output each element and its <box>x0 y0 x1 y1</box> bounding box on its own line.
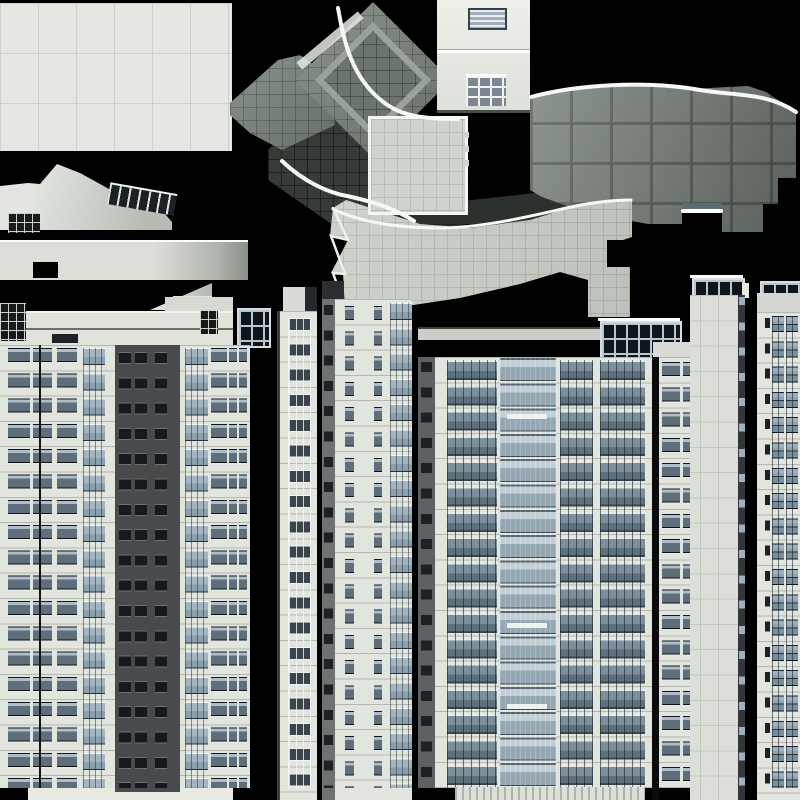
rightwin-wincol-1 <box>772 316 784 788</box>
leftblock-wincol-3 <box>57 348 77 788</box>
bigtower-bay-3 <box>600 360 645 788</box>
midcol1-parapet-dark <box>305 287 317 311</box>
dark-tower-wincol-1 <box>119 352 131 788</box>
atrium-louver-1 <box>507 414 547 419</box>
midcol2-balcony-col <box>390 303 412 788</box>
midcol1-wincol <box>288 318 311 788</box>
leftblock-grid-right <box>200 310 218 334</box>
roof-dark-window-piece <box>8 213 40 233</box>
leftblock-balcony-col-2 <box>185 348 208 788</box>
rightplain-seam-2 <box>718 295 719 800</box>
midcol1-edge <box>277 311 280 800</box>
bigtower-roof-strip <box>418 327 601 340</box>
leftblock-pipe <box>39 345 41 788</box>
dark-tower-wincol-3 <box>155 352 167 788</box>
bigtower-bay-2 <box>560 360 593 788</box>
leftblock-dark-strip <box>52 334 78 343</box>
atrium-louver-3 <box>507 704 547 709</box>
right-roof-blue-sliver <box>683 203 721 209</box>
rightplain-seam-1 <box>700 295 701 800</box>
leftblock-wincol-2 <box>33 348 52 788</box>
glassbox-small <box>237 308 271 348</box>
rightwin-wincol-2 <box>786 316 798 788</box>
leftblock-parapet-line <box>0 328 233 330</box>
leftblock-balcony-col <box>83 348 105 788</box>
bigtower-black-strip <box>652 357 659 800</box>
white-building-seam <box>437 49 530 53</box>
leftblock-wincol-4 <box>211 348 227 788</box>
bigtower-bay-1 <box>447 360 497 788</box>
dark-tower-wincol-2 <box>135 352 147 788</box>
rightwin-slit <box>765 318 770 788</box>
roof-bar-notch <box>33 262 58 278</box>
narrowcol-win-2 <box>239 348 247 788</box>
midcol2-left-windows <box>324 305 333 788</box>
white-building-louver-window <box>468 8 507 30</box>
plaza-square <box>368 116 468 215</box>
texture-atlas-canvas <box>0 0 800 800</box>
midcol2-top-dark <box>322 281 344 301</box>
rightplain-edge-tabs <box>739 297 745 800</box>
leftblock-grid-left <box>0 303 26 341</box>
midcol2-wincol-2 <box>374 306 382 788</box>
narrowcol-win-1 <box>229 348 237 788</box>
rightwin-parapet <box>757 293 800 312</box>
bigtower-ground <box>455 787 645 800</box>
bigtower-wincol-r1 <box>662 362 680 788</box>
white-building-lower-window <box>466 74 506 106</box>
atrium-louver-2 <box>507 623 547 628</box>
bigtower-left-windows <box>421 362 432 786</box>
midcol2-wincol-1 <box>345 306 354 788</box>
midcol1-parapet <box>283 287 305 311</box>
bigtower-atrium <box>500 358 556 788</box>
leftblock-wincol-1 <box>8 348 30 788</box>
rightplain-wall <box>690 295 740 800</box>
roof-panel-topleft <box>0 3 232 151</box>
plaza-square-tabs <box>463 132 469 172</box>
